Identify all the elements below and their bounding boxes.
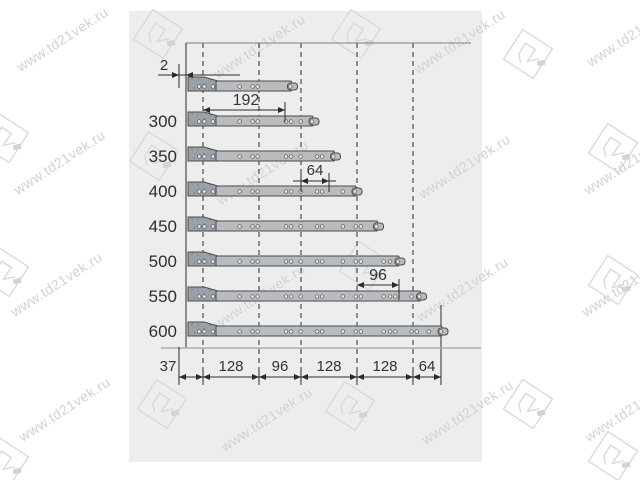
rail-550 bbox=[188, 287, 427, 301]
bottom-dim-label-3: 128 bbox=[316, 358, 341, 375]
bottom-dim-label-5: 64 bbox=[419, 358, 436, 375]
screenshot-root: www.td21vek.ruwww.td21vek.ruwww.td21vek.… bbox=[0, 0, 640, 480]
bottom-dim-label-1: 128 bbox=[218, 358, 243, 375]
dim-label-192: 192 bbox=[233, 92, 260, 109]
bottom-dim-label-4: 128 bbox=[372, 358, 397, 375]
rail-500 bbox=[188, 252, 405, 266]
rail-label-400: 400 bbox=[149, 182, 177, 201]
rail-300 bbox=[188, 112, 319, 126]
rail-label-350: 350 bbox=[149, 147, 177, 166]
rail-label-300: 300 bbox=[149, 112, 177, 131]
rail-label-550: 550 bbox=[149, 287, 177, 306]
rail-label-450: 450 bbox=[149, 217, 177, 236]
rail-label-500: 500 bbox=[149, 252, 177, 271]
dim-label-offset: 2 bbox=[160, 57, 168, 74]
rail-label-600: 600 bbox=[149, 322, 177, 341]
rail-250 bbox=[188, 77, 298, 91]
rail-450 bbox=[188, 217, 384, 231]
bottom-dim-label-0: 37 bbox=[160, 358, 177, 375]
bottom-dim-label-2: 96 bbox=[272, 358, 289, 375]
dim-label-64: 64 bbox=[307, 162, 324, 179]
rail-600 bbox=[188, 322, 448, 336]
rail-400 bbox=[188, 182, 362, 196]
slide-length-diagram: 3003504004505005506002192649637128961281… bbox=[0, 0, 640, 480]
rail-350 bbox=[188, 147, 341, 161]
dim-label-96: 96 bbox=[369, 267, 387, 284]
